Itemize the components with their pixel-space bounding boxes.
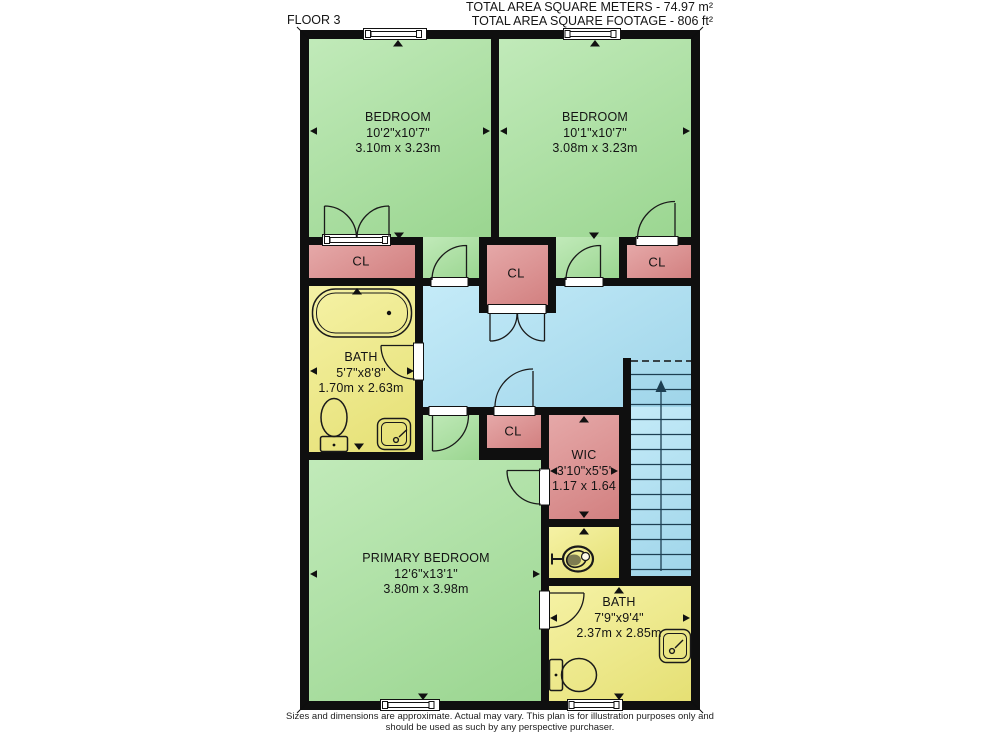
room-stairwell bbox=[631, 407, 691, 576]
label-bath-upper: BATH 5'7"x8'8" 1.70m x 2.63m bbox=[318, 350, 403, 397]
stair-wall-left bbox=[623, 358, 631, 584]
floor-plan-page: FLOOR 3 TOTAL AREA SQUARE METERS - 74.97… bbox=[0, 0, 1000, 735]
label-closet-left: CL bbox=[352, 254, 369, 269]
room-bedroom-left-entry bbox=[423, 237, 479, 278]
room-vanity bbox=[549, 527, 619, 578]
disclaimer: Sizes and dimensions are approximate. Ac… bbox=[0, 711, 1000, 733]
label-closet-hall: CL bbox=[504, 424, 521, 439]
floor-label: FLOOR 3 bbox=[287, 14, 341, 28]
label-bath-lower: BATH 7'9"x9'4" 2.37m x 2.85m bbox=[576, 595, 661, 642]
label-bedroom-right: BEDROOM 10'1"x10'7" 3.08m x 3.23m bbox=[552, 110, 637, 157]
total-area-block: TOTAL AREA SQUARE METERS - 74.97 m² TOTA… bbox=[466, 1, 713, 28]
room-hallway bbox=[423, 286, 691, 407]
label-primary-bedroom: PRIMARY BEDROOM 12'6"x13'1" 3.80m x 3.98… bbox=[362, 551, 490, 598]
label-wic: WIC 3'10"x5'5' 1.17 x 1.64 bbox=[552, 448, 616, 495]
stair-wall-bottom bbox=[623, 576, 691, 586]
label-bedroom-left: BEDROOM 10'2"x10'7" 3.10m x 3.23m bbox=[355, 110, 440, 157]
label-closet-right: CL bbox=[648, 255, 665, 270]
room-bedroom-right-entry bbox=[556, 237, 619, 278]
label-closet-middle: CL bbox=[507, 266, 524, 281]
total-area-metric: TOTAL AREA SQUARE METERS - 74.97 m² bbox=[466, 1, 713, 15]
total-area-imperial: TOTAL AREA SQUARE FOOTAGE - 806 ft² bbox=[466, 15, 713, 29]
room-primary-bedroom-entry bbox=[423, 415, 479, 460]
